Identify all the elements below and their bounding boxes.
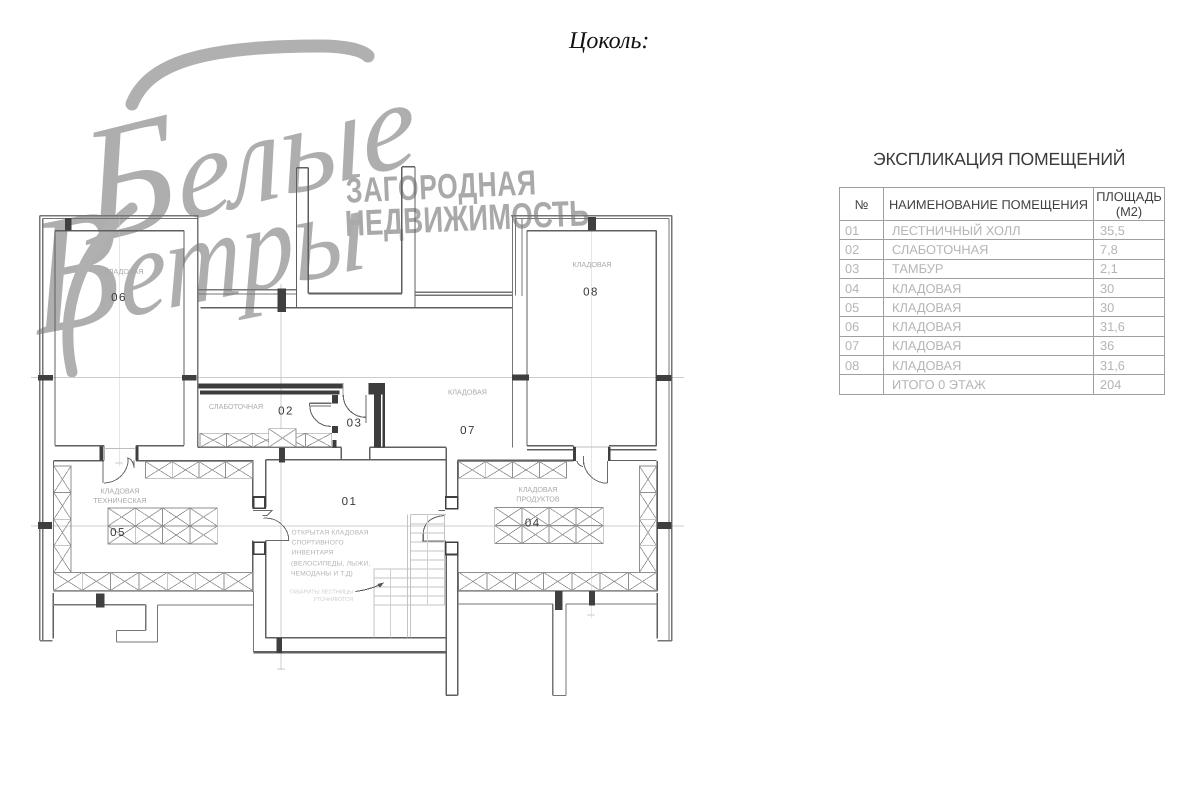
svg-text:07: 07	[460, 425, 476, 437]
svg-text:04: 04	[525, 518, 541, 530]
svg-text:УТОЧНЯЮТСЯ: УТОЧНЯЮТСЯ	[313, 597, 353, 603]
svg-text:КЛАДОВАЯ: КЛАДОВАЯ	[573, 260, 612, 269]
svg-text:КЛАДОВАЯ: КЛАДОВАЯ	[519, 485, 558, 494]
svg-text:КЛАДОВАЯ: КЛАДОВАЯ	[105, 267, 144, 276]
svg-text:КЛАДОВАЯ: КЛАДОВАЯ	[101, 487, 140, 496]
svg-text:КЛАДОВАЯ: КЛАДОВАЯ	[448, 388, 487, 397]
svg-text:(ВЕЛОСИПЕДЫ, ЛЫЖИ,: (ВЕЛОСИПЕДЫ, ЛЫЖИ,	[291, 561, 370, 568]
svg-text:05: 05	[110, 527, 126, 539]
svg-text:СПОРТИВНОГО: СПОРТИВНОГО	[292, 540, 344, 547]
svg-text:ИНВЕНТАРЯ: ИНВЕНТАРЯ	[292, 550, 334, 557]
svg-text:03: 03	[347, 418, 363, 430]
svg-text:ТЕХНИЧЕСКАЯ: ТЕХНИЧЕСКАЯ	[93, 496, 146, 505]
svg-text:08: 08	[583, 287, 599, 299]
svg-text:06: 06	[111, 292, 127, 304]
svg-text:01: 01	[342, 496, 358, 508]
svg-text:ОТКРЫТАЯ КЛАДОВАЯ: ОТКРЫТАЯ КЛАДОВАЯ	[292, 530, 369, 537]
svg-text:ЧЕМОДАНЫ И Т.Д): ЧЕМОДАНЫ И Т.Д)	[291, 571, 353, 578]
svg-text:02: 02	[278, 406, 294, 418]
svg-text:ГАБАРИТЫ ЛЕСТНИЦЫ: ГАБАРИТЫ ЛЕСТНИЦЫ	[290, 590, 353, 596]
svg-text:ПРОДУКТОВ: ПРОДУКТОВ	[516, 495, 560, 504]
svg-text:СЛАБОТОЧНАЯ: СЛАБОТОЧНАЯ	[209, 402, 263, 411]
